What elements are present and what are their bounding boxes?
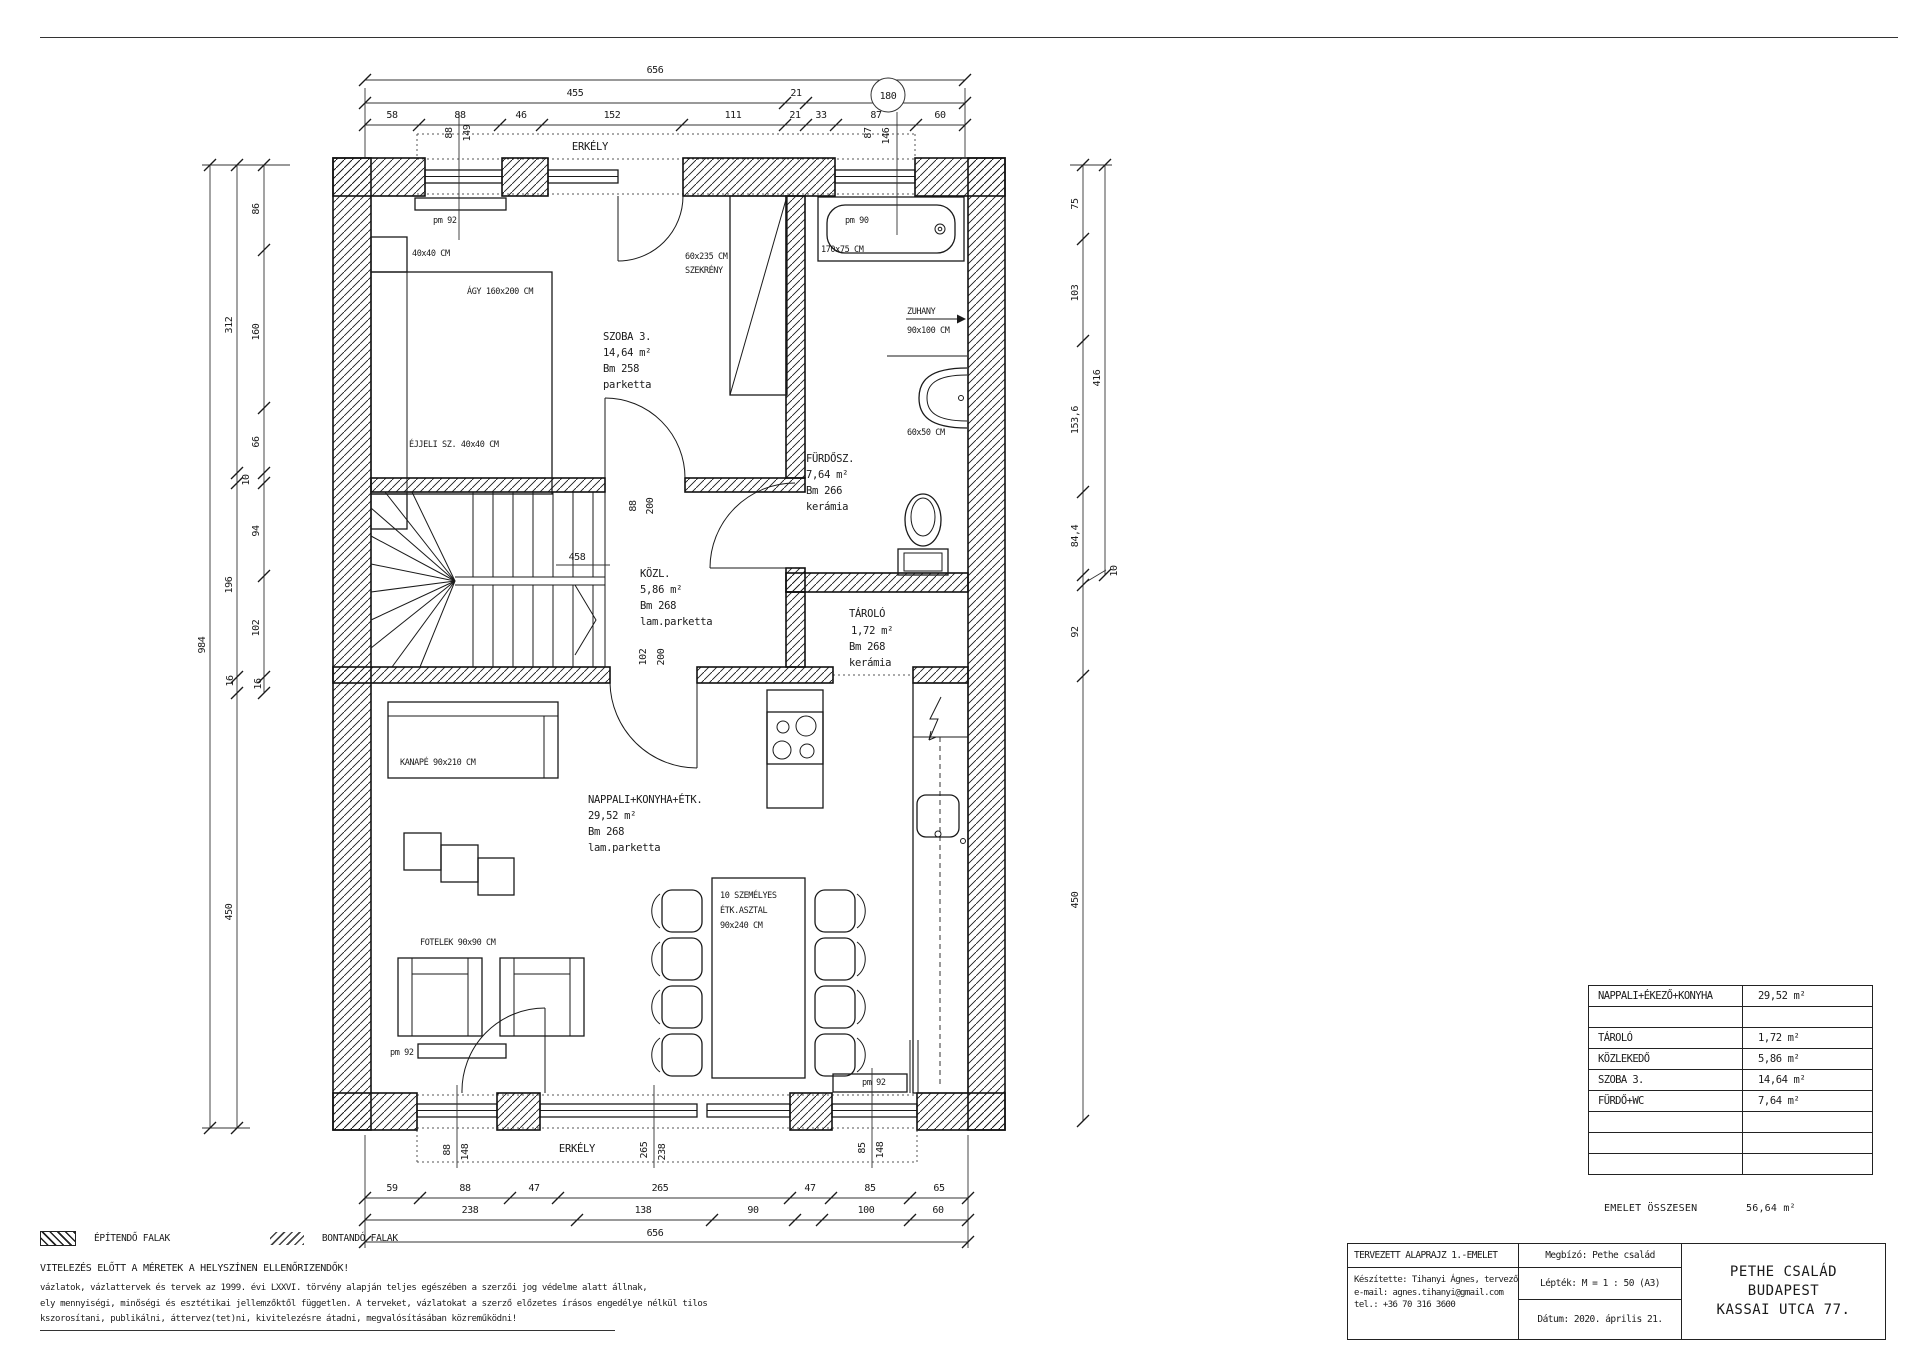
door-dim: 102 (638, 648, 649, 665)
table-row: FÜRDŐ+WC7,64 m² (1589, 1091, 1872, 1112)
dim-label: 656 (647, 65, 664, 76)
dim-label: 92 (1070, 626, 1081, 638)
disclaimer: VITELEZÉS ELŐTT A MÉRETEK A HELYSZÍNEN E… (40, 1263, 680, 1328)
dim-label: 455 (567, 88, 584, 99)
door-dim: 200 (656, 648, 667, 665)
furniture-label: SZEKRÉNY (685, 264, 723, 276)
window-mark: pm 90 (845, 216, 869, 226)
scale: Lépték: M = 1 : 50 (A3) (1519, 1268, 1681, 1300)
room-area: 29,52 m² (588, 810, 636, 822)
furniture-label: 60x235 CM (685, 252, 728, 262)
dim-label: 111 (725, 110, 742, 121)
balcony-label: ERKÉLY (559, 1142, 596, 1155)
room-area: 5,86 m² (640, 584, 682, 596)
room-area-cell: 5,86 m² (1743, 1053, 1872, 1065)
dim-label: 85 (864, 1183, 876, 1194)
room-name-cell: KÖZLEKEDŐ (1589, 1049, 1743, 1069)
door-dim: 200 (645, 497, 656, 514)
dim-label: 10 (1109, 565, 1120, 577)
room-floor: kerámia (806, 501, 848, 513)
furniture-label: ZUHANY (907, 307, 936, 317)
dim-label: 86 (251, 203, 262, 215)
room-floor: lam.parketta (640, 616, 712, 628)
dim-label: 196 (224, 576, 235, 593)
disclaimer-heading: VITELEZÉS ELŐTT A MÉRETEK A HELYSZÍNEN E… (40, 1263, 680, 1274)
demolish-walls-swatch-icon (270, 1232, 304, 1245)
detail-bubble: 180 (880, 91, 897, 102)
room-name-cell (1589, 1154, 1743, 1174)
table-row: SZOBA 3.14,64 m² (1589, 1070, 1872, 1091)
plan-labels: ERKÉLY ERKÉLY SZOBA 3. 14,64 m² Bm 258 p… (390, 140, 950, 1155)
dim-label: 47 (528, 1183, 540, 1194)
room-height: Bm 268 (640, 600, 676, 612)
window-mark: pm 92 (390, 1048, 414, 1058)
drawing-sheet: 656 455 21 180 58 88 46 152 111 21 33 87… (0, 0, 1920, 1358)
dim-label: 87 (870, 110, 882, 121)
furniture-label: 90x100 CM (907, 326, 950, 336)
dim-label: 33 (815, 110, 827, 121)
dim-label: 149 (462, 124, 473, 141)
table-row: NAPPALI+ÉKEZŐ+KONYHA29,52 m² (1589, 986, 1872, 1007)
dim-label: 88 (454, 110, 466, 121)
dim-label: 160 (251, 323, 262, 340)
legend-demolish-label: BONTANDÓ FALAK (322, 1233, 398, 1244)
room-area: 14,64 m² (603, 347, 651, 359)
balcony-label: ERKÉLY (572, 140, 609, 153)
dim-label: 60 (934, 110, 946, 121)
furniture-label: ÉJJELI SZ. 40x40 CM (409, 438, 499, 450)
table-row (1589, 1154, 1872, 1174)
room-name-cell (1589, 1112, 1743, 1132)
area-table: NAPPALI+ÉKEZŐ+KONYHA29,52 m² TÁROLÓ1,72 … (1588, 985, 1873, 1175)
dim-label: 88 (442, 1144, 453, 1156)
floor-total-label: EMELET ÖSSZESEN (1604, 1203, 1697, 1214)
dim-label: 47 (804, 1183, 816, 1194)
dim-label: 58 (386, 110, 398, 121)
dim-label: 88 (459, 1183, 471, 1194)
room-area: 1,72 m² (851, 625, 893, 637)
title-block: TERVEZETT ALAPRAJZ 1.-EMELET Készítette:… (1347, 1243, 1886, 1340)
dim-label: 65 (933, 1183, 945, 1194)
room-floor: parketta (603, 379, 651, 391)
room-label: FÜRDŐSZ. (806, 451, 854, 465)
room-label: NAPPALI+KONYHA+ÉTK. (588, 793, 702, 806)
date: Dátum: 2020. április 21. (1519, 1300, 1681, 1339)
title-block-col-mid: Megbízó: Pethe család Lépték: M = 1 : 50… (1519, 1244, 1682, 1339)
dim-label: 265 (652, 1183, 669, 1194)
designer-phone: tel.: +36 70 316 3600 (1354, 1299, 1518, 1312)
dim-label: 46 (515, 110, 527, 121)
window-mark: pm 92 (433, 216, 457, 226)
room-area-cell: 14,64 m² (1743, 1074, 1872, 1086)
dim-label: 450 (224, 903, 235, 920)
furniture-label: 170x75 CM (821, 245, 864, 255)
room-label: KÖZL. (640, 567, 670, 580)
windows (417, 170, 917, 1117)
room-area-cell: 29,52 m² (1743, 990, 1872, 1002)
dim-label: 152 (604, 110, 621, 121)
disclaimer-line: kszorosítani, publikálni, áttervez(tet)n… (40, 1312, 680, 1328)
furniture-label: KANAPÉ 90x210 CM (400, 756, 476, 768)
room-name-cell: NAPPALI+ÉKEZŐ+KONYHA (1589, 986, 1743, 1006)
disclaimer-line: ely mennyiségi, minőségi és esztétikai j… (40, 1297, 680, 1313)
table-row: KÖZLEKEDŐ5,86 m² (1589, 1049, 1872, 1070)
room-area: 7,64 m² (806, 469, 848, 481)
dim-label: 416 (1092, 369, 1103, 386)
table-row (1589, 1133, 1872, 1154)
dim-label: 85 (857, 1142, 868, 1154)
room-height: Bm 268 (849, 641, 885, 653)
furniture-label: FOTELEK 90x90 CM (420, 938, 496, 948)
dim-label: 16 (253, 678, 264, 690)
door-dim: 88 (628, 500, 639, 512)
designer-info: Készítette: Tihanyi Ágnes, tervező e-mai… (1348, 1268, 1518, 1339)
dim-label: 138 (635, 1205, 652, 1216)
designer-email: e-mail: agnes.tihanyi@gmail.com (1354, 1287, 1518, 1300)
room-name-cell: SZOBA 3. (1589, 1070, 1743, 1090)
room-label: SZOBA 3. (603, 331, 651, 343)
room-name-cell: FÜRDŐ+WC (1589, 1091, 1743, 1111)
dim-label: 265 (639, 1141, 650, 1158)
dim-label: 238 (657, 1143, 668, 1160)
drawing-title: TERVEZETT ALAPRAJZ 1.-EMELET (1348, 1244, 1518, 1268)
room-floor: lam.parketta (588, 842, 660, 854)
dim-label: 100 (858, 1205, 875, 1216)
dim-label: 153,6 (1070, 406, 1081, 434)
dim-label: 10 (241, 474, 252, 486)
table-row (1589, 1112, 1872, 1133)
table-row: TÁROLÓ1,72 m² (1589, 1028, 1872, 1049)
furniture-label: 10 SZEMÉLYES (720, 889, 777, 901)
dim-label: 66 (251, 436, 262, 448)
legend: ÉPÍTENDŐ FALAK BONTANDÓ FALAK (40, 1231, 398, 1246)
dim-label: 148 (460, 1143, 471, 1160)
room-floor: kerámia (849, 657, 891, 669)
room-label: TÁROLÓ (849, 607, 885, 620)
dim-label: 59 (386, 1183, 398, 1194)
room-area-cell: 7,64 m² (1743, 1095, 1872, 1107)
dim-label: 148 (875, 1141, 886, 1158)
project-line: KASSAI UTCA 77. (1717, 1301, 1851, 1320)
dim-label: 84,4 (1070, 524, 1081, 547)
dim-label: 88 (444, 127, 455, 139)
room-area-cell: 1,72 m² (1743, 1032, 1872, 1044)
dim-label: 984 (197, 636, 208, 653)
furniture-label: 40x40 CM (412, 249, 450, 259)
dim-label: 16 (225, 675, 236, 687)
dim-label: 312 (224, 316, 235, 333)
room-name-cell: TÁROLÓ (1589, 1028, 1743, 1048)
dim-label: 146 (881, 127, 892, 144)
furniture-label: ÁGY 160x200 CM (467, 285, 533, 297)
dim-label: 238 (462, 1205, 479, 1216)
dim-label: 21 (789, 110, 801, 121)
table-row (1589, 1007, 1872, 1028)
dim-label: 94 (251, 525, 262, 537)
dim-label: 87 (863, 127, 874, 139)
stair-note: 458 (569, 552, 586, 563)
project-line: PETHE CSALÁD (1730, 1263, 1837, 1282)
room-height: Bm 268 (588, 826, 624, 838)
furniture-label: ÉTK.ASZTAL (720, 904, 767, 916)
dim-label: 656 (647, 1228, 664, 1239)
dim-label: 21 (790, 88, 802, 99)
disclaimer-line: vázlatok, vázlattervek és tervek az 1999… (40, 1281, 680, 1297)
dim-label: 102 (251, 619, 262, 636)
furniture-label: 90x240 CM (720, 921, 763, 931)
living-furniture (388, 683, 968, 1093)
floor-total: EMELET ÖSSZESEN 56,64 m² (1604, 1203, 1894, 1214)
client: Megbízó: Pethe család (1519, 1244, 1681, 1268)
project-line: BUDAPEST (1748, 1282, 1819, 1301)
floor-total-value: 56,64 m² (1746, 1203, 1796, 1214)
walls (333, 158, 1005, 1130)
dim-label: 450 (1070, 891, 1081, 908)
room-name-cell (1589, 1007, 1743, 1027)
designer-name: Készítette: Tihanyi Ágnes, tervező (1354, 1274, 1518, 1287)
dim-label: 103 (1070, 284, 1081, 301)
disclaimer-rule (40, 1330, 615, 1331)
room-height: Bm 258 (603, 363, 639, 375)
legend-build-label: ÉPÍTENDŐ FALAK (94, 1233, 170, 1244)
project-name: PETHE CSALÁD BUDAPEST KASSAI UTCA 77. (1682, 1244, 1885, 1339)
build-walls-swatch-icon (40, 1231, 76, 1246)
furniture-label: 60x50 CM (907, 428, 945, 438)
room-height: Bm 266 (806, 485, 842, 497)
window-mark: pm 92 (862, 1078, 886, 1088)
title-block-col-left: TERVEZETT ALAPRAJZ 1.-EMELET Készítette:… (1348, 1244, 1519, 1339)
dim-label: 90 (747, 1205, 759, 1216)
dim-label: 60 (932, 1205, 944, 1216)
room-name-cell (1589, 1133, 1743, 1153)
dim-label: 75 (1070, 198, 1081, 210)
